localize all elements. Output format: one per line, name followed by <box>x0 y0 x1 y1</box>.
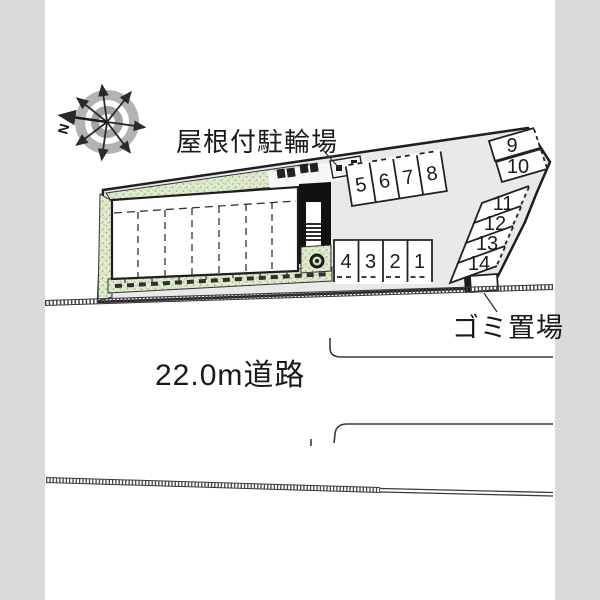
left-margin <box>0 0 45 600</box>
parking-number-4: 4 <box>340 251 351 273</box>
parking-number-1: 1 <box>414 251 425 273</box>
parking-row-4-1: 4 3 2 1 <box>334 240 432 284</box>
building <box>112 187 298 283</box>
road-label: 22.0m道路 <box>155 359 305 392</box>
parking-number-10: 10 <box>507 156 529 178</box>
site-plan: N <box>0 0 600 600</box>
bicycle-parking-label: 屋根付駐輪場 <box>176 127 338 157</box>
parking-number-2: 2 <box>389 251 400 273</box>
parking-number-12: 12 <box>484 213 506 235</box>
parking-number-11: 11 <box>493 193 514 215</box>
parking-number-13: 13 <box>476 233 498 255</box>
parking-number-9: 9 <box>506 135 517 157</box>
site-plan-page: N <box>0 0 600 600</box>
garbage-label: ゴミ置場 <box>452 313 564 343</box>
parking-number-14: 14 <box>468 253 490 275</box>
right-margin <box>555 0 600 600</box>
parking-number-3: 3 <box>365 251 376 273</box>
planter-with-manhole <box>301 245 331 273</box>
